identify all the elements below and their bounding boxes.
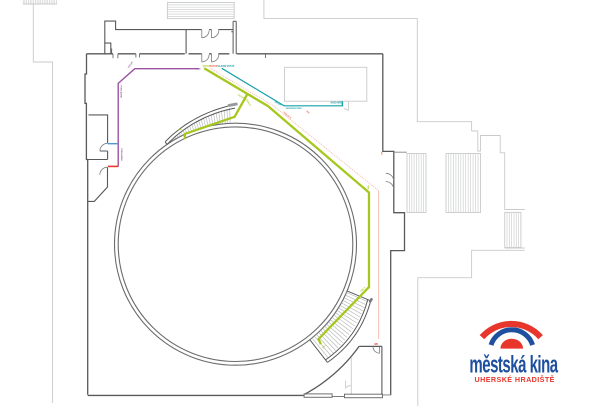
svg-text:WC: WC: [380, 152, 382, 156]
svg-text:POKLADNA: POKLADNA: [120, 148, 123, 161]
svg-text:VSTUP: VSTUP: [128, 61, 134, 68]
svg-text:SÁL: SÁL: [367, 184, 370, 189]
svg-text:ŠATNA: ŠATNA: [274, 100, 282, 106]
svg-text:WC: WC: [374, 343, 378, 346]
svg-text:WC: WC: [306, 111, 310, 115]
svg-text:SÁLU: SÁLU: [246, 100, 252, 107]
svg-text:KINO MÍR: KINO MÍR: [331, 101, 342, 104]
svg-text:UHERSKÉ HRADIŠTĚ: UHERSKÉ HRADIŠTĚ: [475, 375, 555, 384]
svg-text:KINO: KINO: [195, 68, 201, 70]
svg-text:HLAVNÍ VSTUP: HLAVNÍ VSTUP: [218, 65, 235, 68]
svg-text:VSTUP: VSTUP: [210, 66, 218, 68]
svg-text:OBČERSTVENÍ: OBČERSTVENÍ: [286, 107, 302, 110]
svg-text:POKLADNA: POKLADNA: [120, 86, 123, 99]
svg-text:SÁL: SÁL: [322, 344, 327, 350]
